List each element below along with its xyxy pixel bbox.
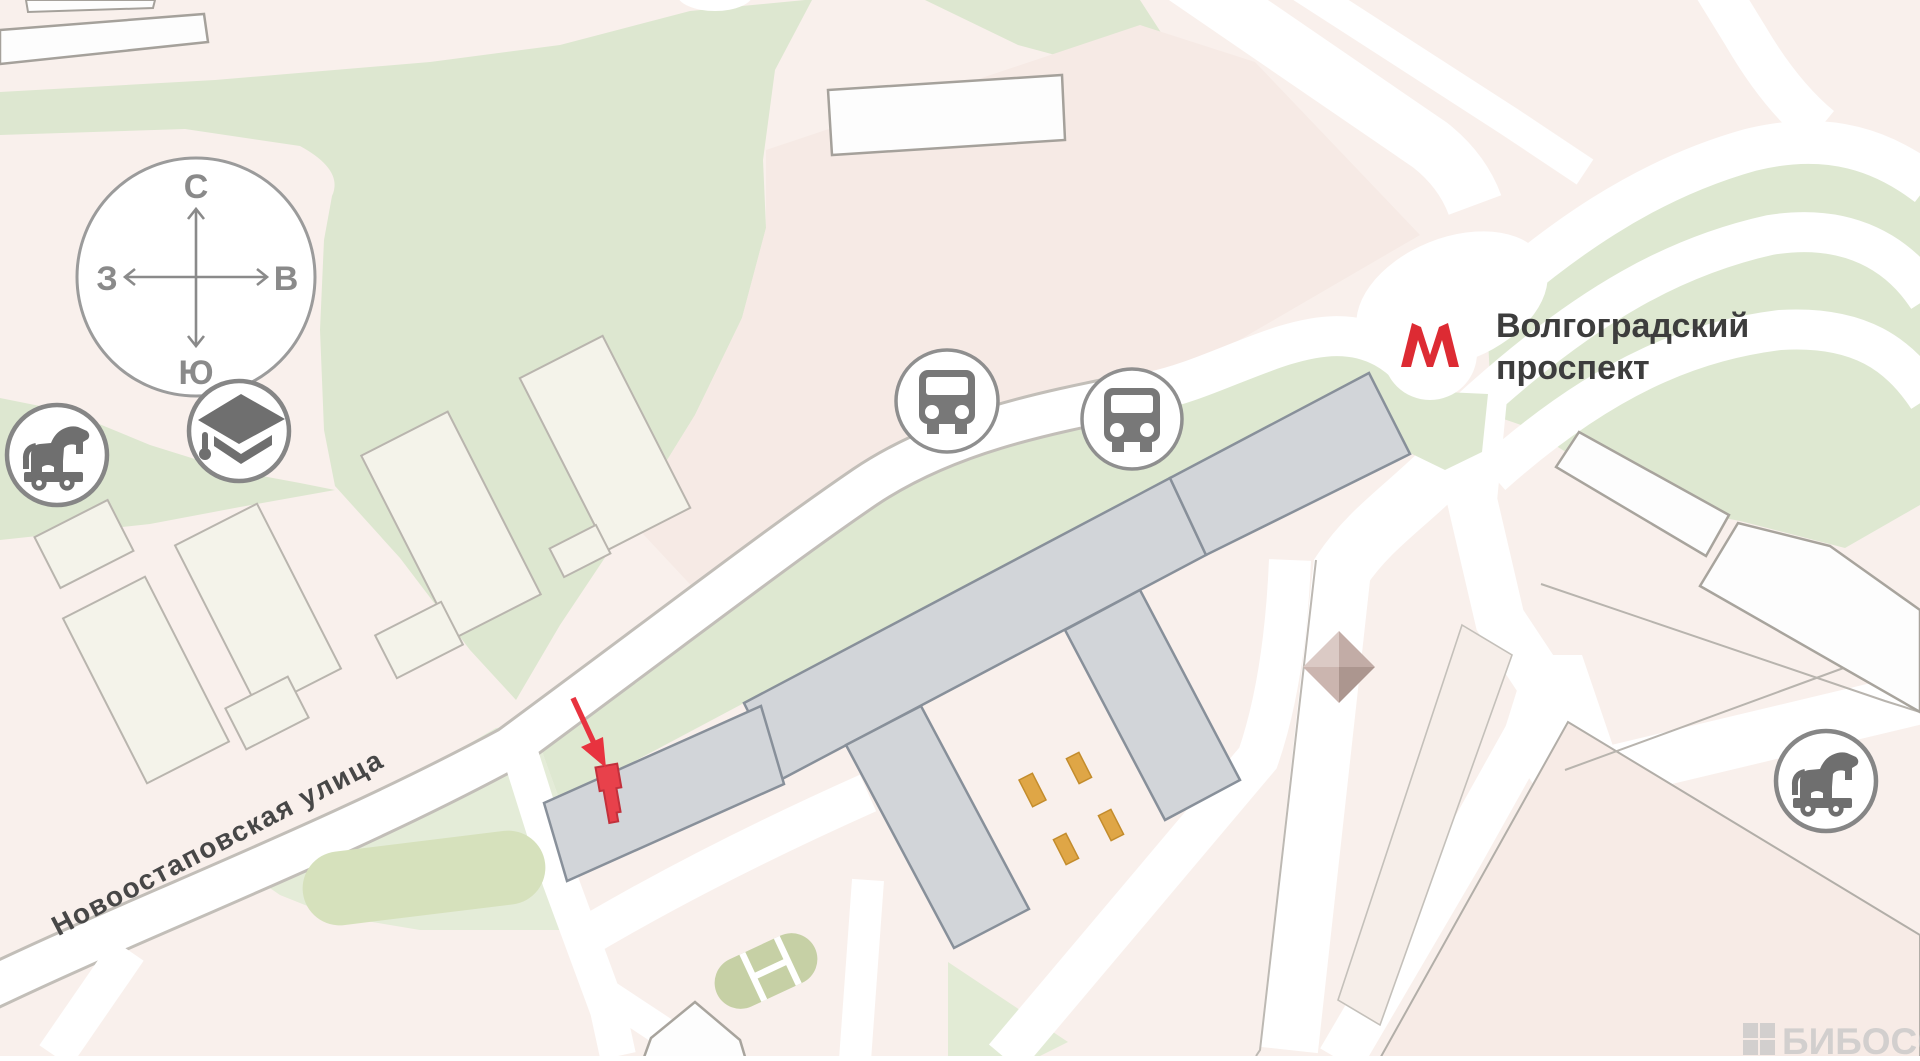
svg-text:Волгоградский: Волгоградский [1496, 307, 1749, 345]
svg-text:З: З [96, 260, 117, 298]
svg-text:БИБОСС: БИБОСС [1782, 1021, 1920, 1056]
svg-text:В: В [274, 260, 299, 298]
svg-text:С: С [184, 168, 209, 206]
svg-text:проспект: проспект [1496, 349, 1650, 387]
svg-text:Ю: Ю [178, 354, 213, 392]
